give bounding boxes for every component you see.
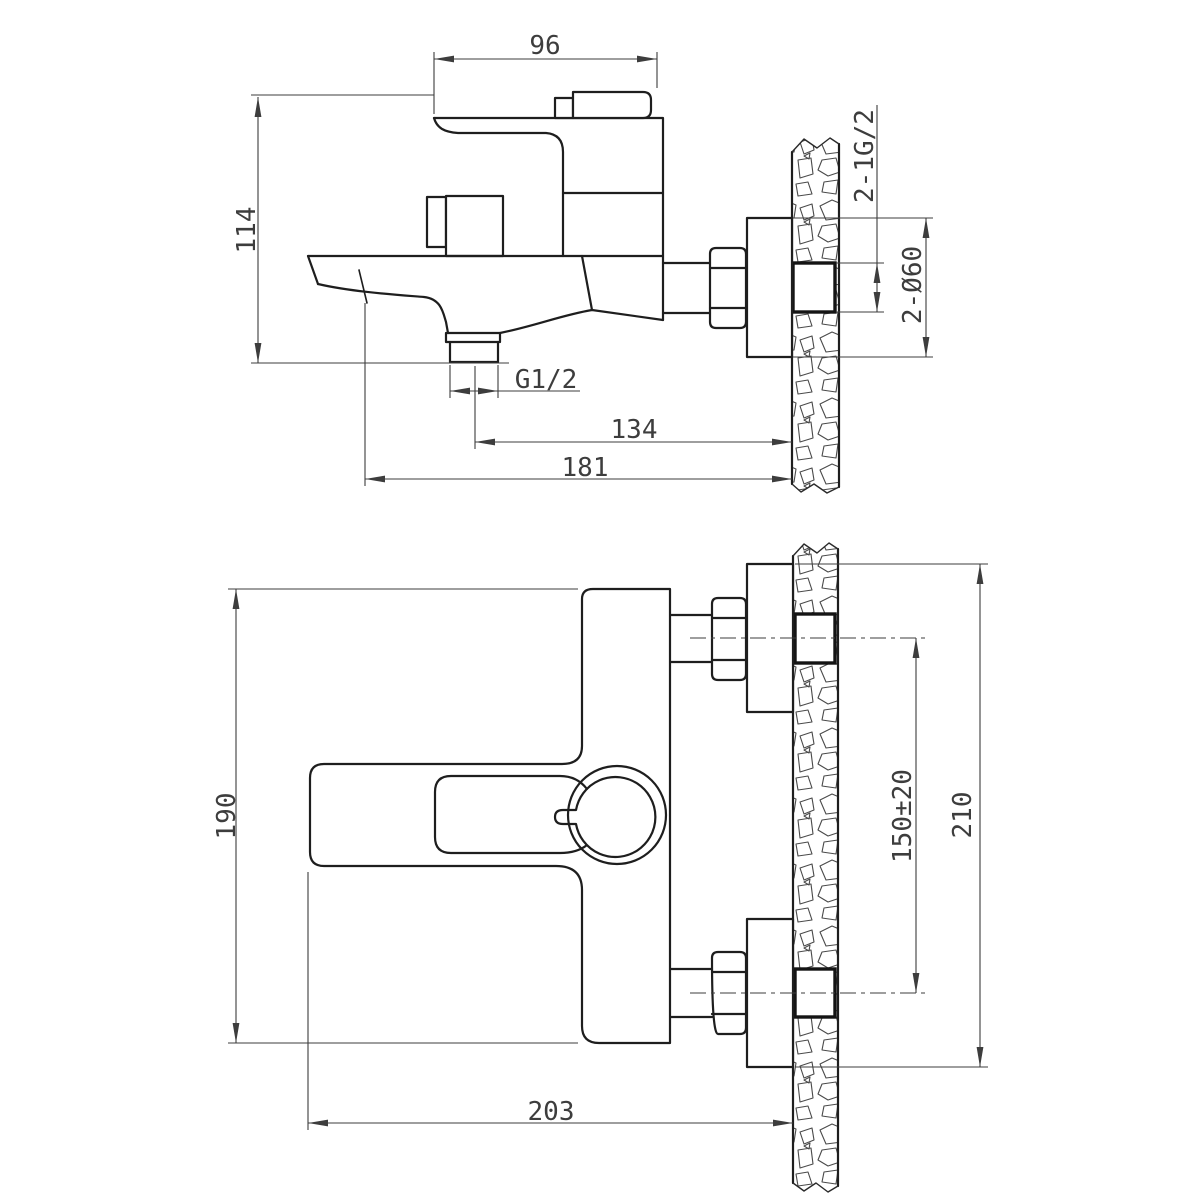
dim-181-label: 181 xyxy=(562,453,609,483)
wall-section-side xyxy=(792,138,839,493)
technical-drawing: 96 114 G1/2 134 181 xyxy=(0,0,1200,1200)
dim-96-label: 96 xyxy=(529,31,560,61)
dim-2-o60-label: 2-Ø60 xyxy=(898,246,928,324)
handle-lever-side xyxy=(555,92,651,118)
handle-knob-plan xyxy=(568,766,666,864)
plan-view: 190 150±20 210 203 xyxy=(212,543,988,1192)
hex-nut-upper xyxy=(712,598,746,680)
inlet-pipe-side xyxy=(663,263,710,313)
wall-inlet-side xyxy=(793,263,835,312)
dim-g12-label: G1/2 xyxy=(515,365,578,395)
spout-side xyxy=(308,256,663,362)
wall-hatch-side xyxy=(792,138,839,493)
side-view: 96 114 G1/2 134 181 xyxy=(232,31,933,493)
dim-134-label: 134 xyxy=(611,415,658,445)
dim-114-label: 114 xyxy=(232,207,262,254)
dim-181: 181 xyxy=(365,303,792,486)
dim-2-1g2-label: 2-1G/2 xyxy=(850,109,880,203)
dim-150-label: 150±20 xyxy=(888,769,918,863)
dim-150: 150±20 xyxy=(888,638,919,993)
dim-210-label: 210 xyxy=(948,792,978,839)
drawing-canvas: 96 114 G1/2 134 181 xyxy=(0,0,1200,1200)
diverter-knob-side xyxy=(427,196,503,256)
dim-2-1g2: 2-1G/2 xyxy=(836,105,884,312)
dim-190-label: 190 xyxy=(212,793,242,840)
dim-203-label: 203 xyxy=(528,1097,575,1127)
hex-nut-side xyxy=(710,248,746,328)
dim-g12: G1/2 xyxy=(450,365,580,398)
escutcheon-side xyxy=(747,218,792,357)
outlet-nipple xyxy=(450,342,498,362)
